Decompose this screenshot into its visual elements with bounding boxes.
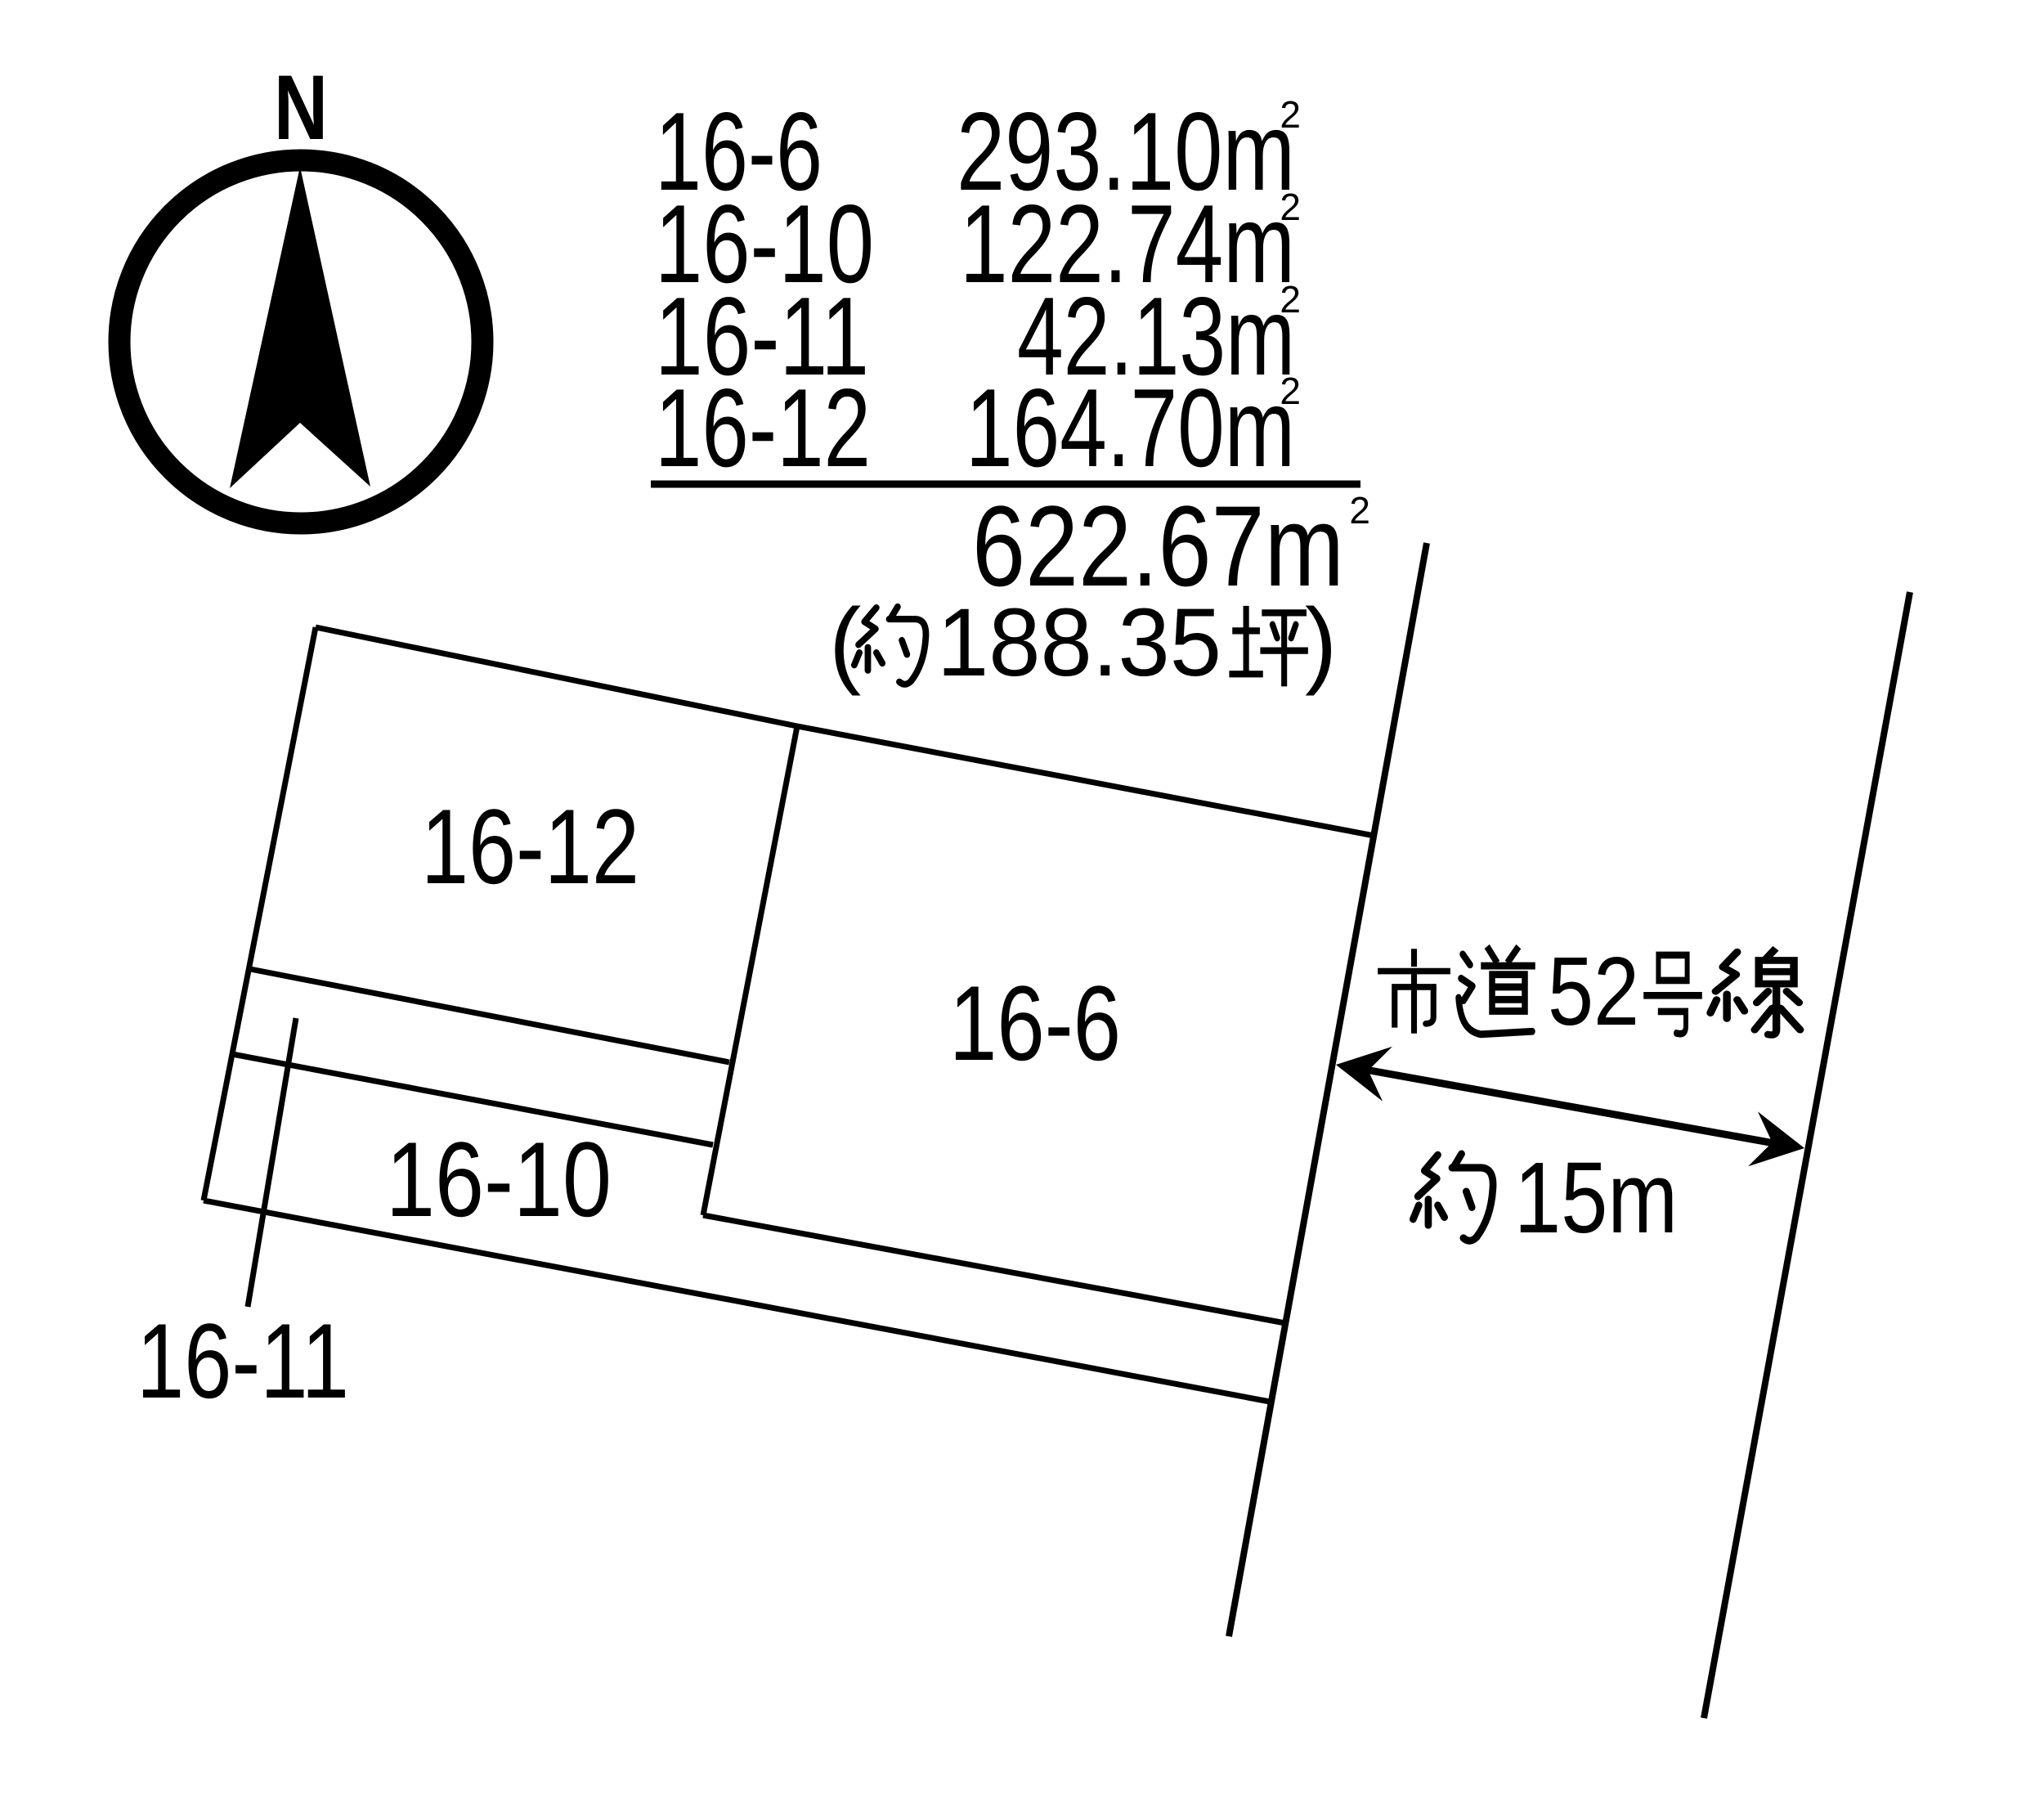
svg-text:16-10: 16-10 [386,1120,612,1239]
svg-text:188.35: 188.35 [937,589,1221,697]
svg-text:2: 2 [1349,489,1370,532]
svg-text:2: 2 [1280,370,1301,412]
svg-text:16-12: 16-12 [655,366,871,490]
svg-text:16-6: 16-6 [949,963,1121,1083]
svg-text:2: 2 [1280,278,1301,321]
svg-text:16-11: 16-11 [137,1301,349,1420]
svg-text:16-12: 16-12 [421,787,639,906]
svg-text:2: 2 [1280,93,1301,136]
svg-text:): ) [1305,589,1337,697]
svg-text:52: 52 [1548,937,1639,1046]
svg-text:N: N [274,56,328,159]
svg-text:164.70m: 164.70m [966,366,1295,490]
svg-text:15m: 15m [1514,1142,1678,1254]
svg-text:2: 2 [1280,186,1301,228]
